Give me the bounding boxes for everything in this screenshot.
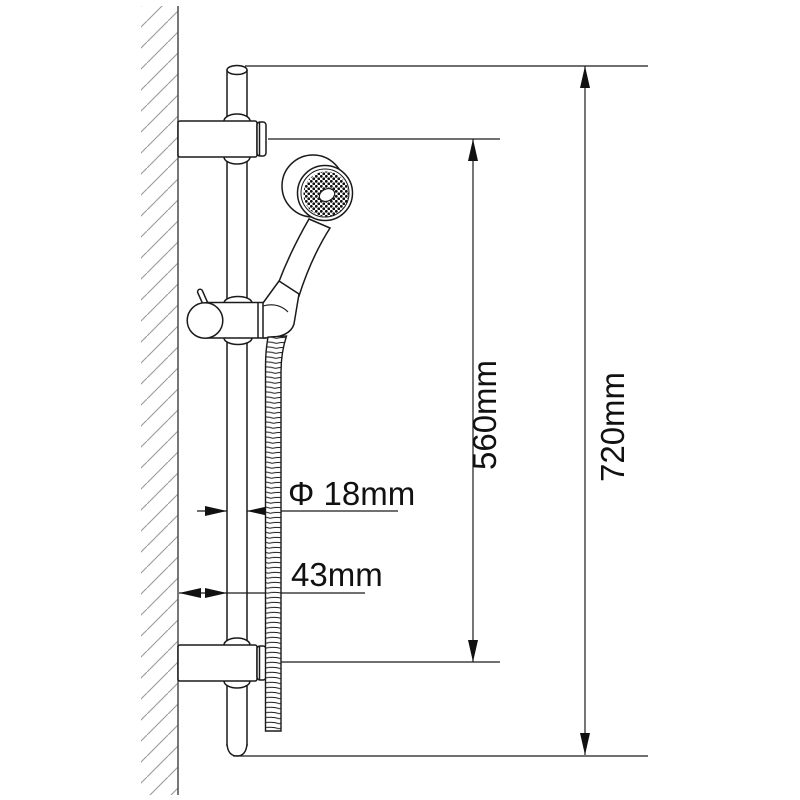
arrow-right-icon — [205, 506, 227, 516]
dimension-label-720: 720mm — [594, 372, 631, 482]
shower-hose — [266, 336, 287, 731]
arrow-down-icon — [580, 733, 590, 755]
arrow-right-icon — [205, 588, 227, 598]
holder-end-cap — [187, 303, 223, 339]
arrow-down-icon — [468, 640, 478, 662]
shower-head — [282, 155, 353, 221]
wall-hatching — [141, 6, 178, 795]
rail-top-cap — [227, 66, 247, 75]
arrow-left-icon — [179, 588, 201, 598]
bracket-end-cap — [257, 122, 266, 156]
shower-rail-technical-drawing: 560mm 720mm Φ 18mm 43mm — [0, 0, 800, 800]
handle-body — [278, 219, 330, 296]
rail-bottom-cap — [227, 744, 247, 756]
arrow-up-icon — [580, 66, 590, 88]
hose-corrugation — [266, 336, 287, 731]
drawing-canvas: 560mm 720mm Φ 18mm 43mm — [0, 0, 800, 800]
top-bracket — [178, 114, 266, 164]
wall — [141, 6, 178, 795]
bottom-bracket — [178, 638, 266, 688]
dimension-label-560: 560mm — [466, 360, 503, 470]
bracket-end-cap — [257, 646, 266, 680]
dimension-label-diameter: Φ 18mm — [288, 475, 415, 512]
dimension-label-wall-offset: 43mm — [291, 556, 383, 593]
bracket-body — [178, 645, 257, 681]
arrow-up-icon — [468, 139, 478, 161]
bracket-body — [178, 121, 257, 157]
shower-handle — [278, 219, 330, 296]
dimension-labels: 560mm 720mm Φ 18mm 43mm — [288, 360, 631, 593]
